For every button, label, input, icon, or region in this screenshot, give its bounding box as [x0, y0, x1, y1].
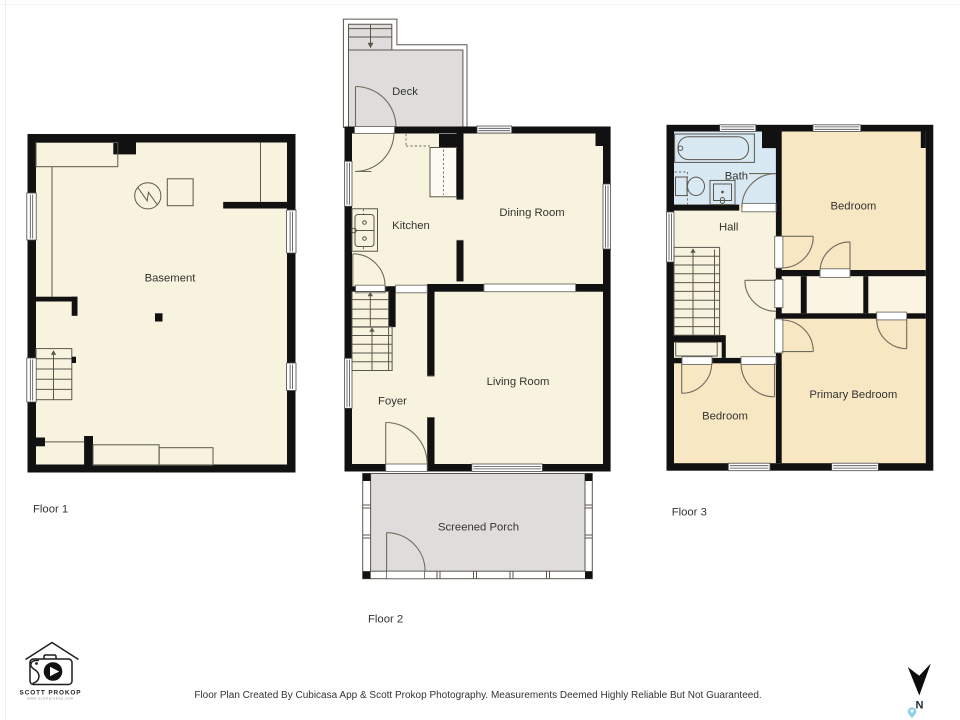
svg-text:Screened Porch: Screened Porch [438, 522, 519, 534]
svg-text:Floor 1: Floor 1 [33, 504, 68, 516]
svg-text:SCOTT PROKOP: SCOTT PROKOP [20, 690, 82, 697]
svg-text:Kitchen: Kitchen [392, 220, 430, 232]
svg-text:www.scottprokop.com: www.scottprokop.com [27, 697, 73, 701]
svg-text:Basement: Basement [145, 273, 197, 285]
svg-text:Bath: Bath [725, 171, 748, 183]
svg-text:N: N [916, 700, 924, 712]
svg-text:Floor 3: Floor 3 [672, 507, 707, 519]
svg-text:Primary Bedroom: Primary Bedroom [809, 389, 897, 401]
svg-text:Deck: Deck [392, 86, 418, 98]
svg-text:Living Room: Living Room [487, 376, 550, 388]
svg-text:Foyer: Foyer [378, 396, 407, 408]
svg-text:Dining Room: Dining Room [499, 207, 564, 219]
svg-text:Hall: Hall [719, 222, 738, 234]
svg-text:Floor Plan Created By Cubicasa: Floor Plan Created By Cubicasa App & Sco… [194, 690, 761, 701]
svg-text:Bedroom: Bedroom [830, 201, 876, 213]
svg-text:Floor 2: Floor 2 [368, 614, 403, 626]
svg-text:Bedroom: Bedroom [702, 411, 748, 423]
